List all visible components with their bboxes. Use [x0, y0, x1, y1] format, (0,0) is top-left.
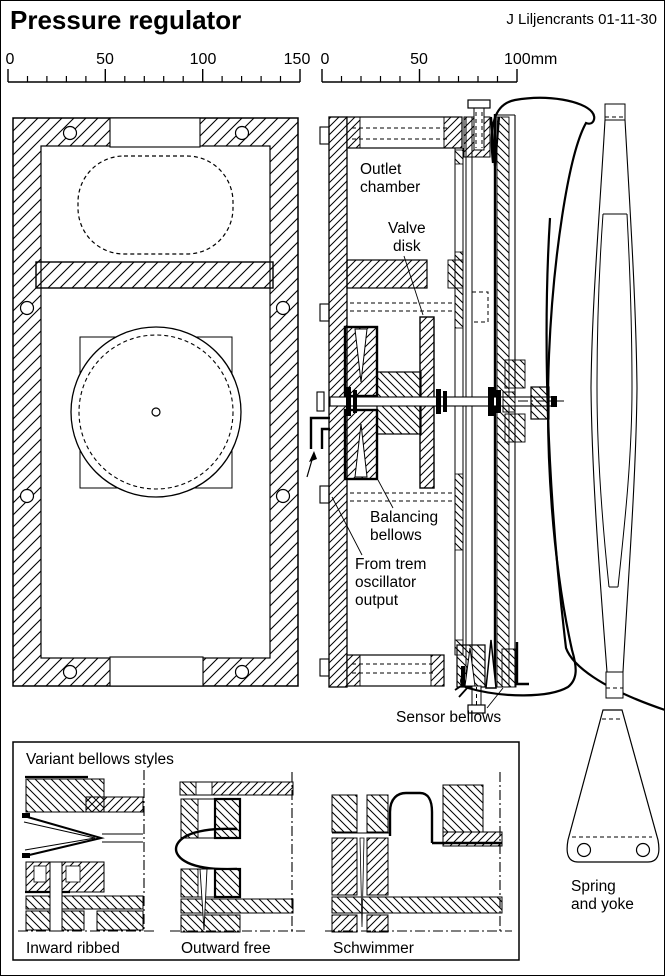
ruler-left-label-0: 0 — [6, 51, 15, 68]
label-spring-yoke-1: Spring — [571, 878, 616, 895]
valve-seat-right — [448, 260, 463, 288]
ruler-left-label-50: 50 — [96, 51, 114, 68]
variants-title: Variant bellows styles — [26, 751, 174, 768]
yoke-hole-left — [578, 844, 591, 857]
label-valve-disk-2: disk — [393, 238, 421, 255]
label-from-trem-2: oscillator — [355, 574, 416, 591]
plan-view — [13, 118, 298, 686]
yoke-hole-right — [637, 844, 650, 857]
label-balancing-bellows-2: bellows — [370, 527, 422, 544]
label-from-trem-3: output — [355, 592, 399, 609]
variants-box: Variant bellows styles Inward ribbed — [13, 742, 519, 960]
label-valve-disk-1: Valve — [388, 220, 426, 237]
label-outlet-chamber-1: Outlet — [360, 161, 402, 178]
wall-boss-upper — [505, 360, 525, 388]
variants-box-border — [13, 742, 519, 960]
label-from-trem-1: From trem — [355, 556, 426, 573]
plan-center-hole — [152, 408, 160, 416]
plan-top-slot — [110, 118, 200, 147]
valve-seat — [347, 260, 427, 288]
page-title: Pressure regulator — [10, 5, 241, 35]
ruler-right-label-50: 50 — [410, 51, 428, 68]
label-spring-yoke-2: and yoke — [571, 896, 634, 913]
label-balancing-bellows-1: Balancing — [370, 509, 438, 526]
variant-label-inward-ribbed: Inward ribbed — [26, 940, 120, 957]
variant-label-outward-free: Outward free — [181, 940, 271, 957]
wall-boss-lower — [505, 414, 525, 442]
ruler-left-label-100: 100 — [190, 51, 217, 68]
rod-nut — [503, 392, 515, 412]
ruler-left-label-150: 150 — [284, 51, 311, 68]
pressure-regulator-drawing: Pressure regulator J Liljencrants 01-11-… — [0, 0, 665, 976]
label-sensor-bellows: Sensor bellows — [396, 709, 501, 726]
plan-bottom-slot — [110, 657, 203, 686]
variant-label-schwimmer: Schwimmer — [333, 940, 414, 957]
credit-text: J Liljencrants 01-11-30 — [506, 11, 657, 28]
plan-cross-bar — [36, 262, 273, 288]
ruler-right-label-0: 0 — [321, 51, 330, 68]
label-outlet-chamber-2: chamber — [360, 179, 420, 196]
ruler-right-label-100mm: 100mm — [504, 51, 557, 68]
section-bottom-plate — [347, 655, 444, 686]
section-top-plate — [347, 117, 462, 148]
